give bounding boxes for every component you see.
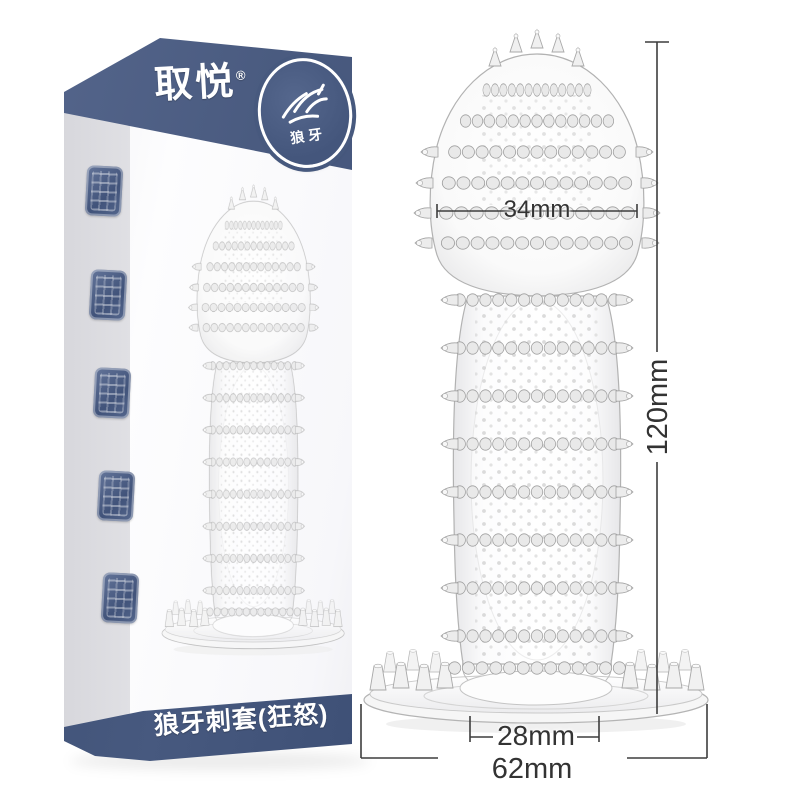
- brand-logo-text: 取悦: [153, 61, 237, 107]
- badge-label: 狼牙: [289, 123, 327, 148]
- side-seal-stamp-4: [97, 470, 136, 522]
- side-seal-stamp-5: [101, 572, 140, 624]
- dim-label-total-length: 120mm: [642, 347, 672, 467]
- wolf-icon: [273, 76, 335, 133]
- packaging-box: 取悦® 狼牙 狼牙刺套(狂怒): [62, 36, 360, 766]
- side-seal-stamp-2: [89, 269, 128, 321]
- dim-label-opening-width: 28mm: [486, 720, 586, 752]
- dim-label-head-width: 34mm: [487, 196, 587, 224]
- registered-trademark-icon: ®: [236, 67, 249, 83]
- side-seal-stamp-3: [93, 367, 132, 419]
- side-seal-stamp-1: [85, 165, 124, 217]
- dim-label-base-width: 62mm: [482, 753, 582, 786]
- product-photo-stage: 取悦® 狼牙 狼牙刺套(狂怒): [0, 0, 800, 800]
